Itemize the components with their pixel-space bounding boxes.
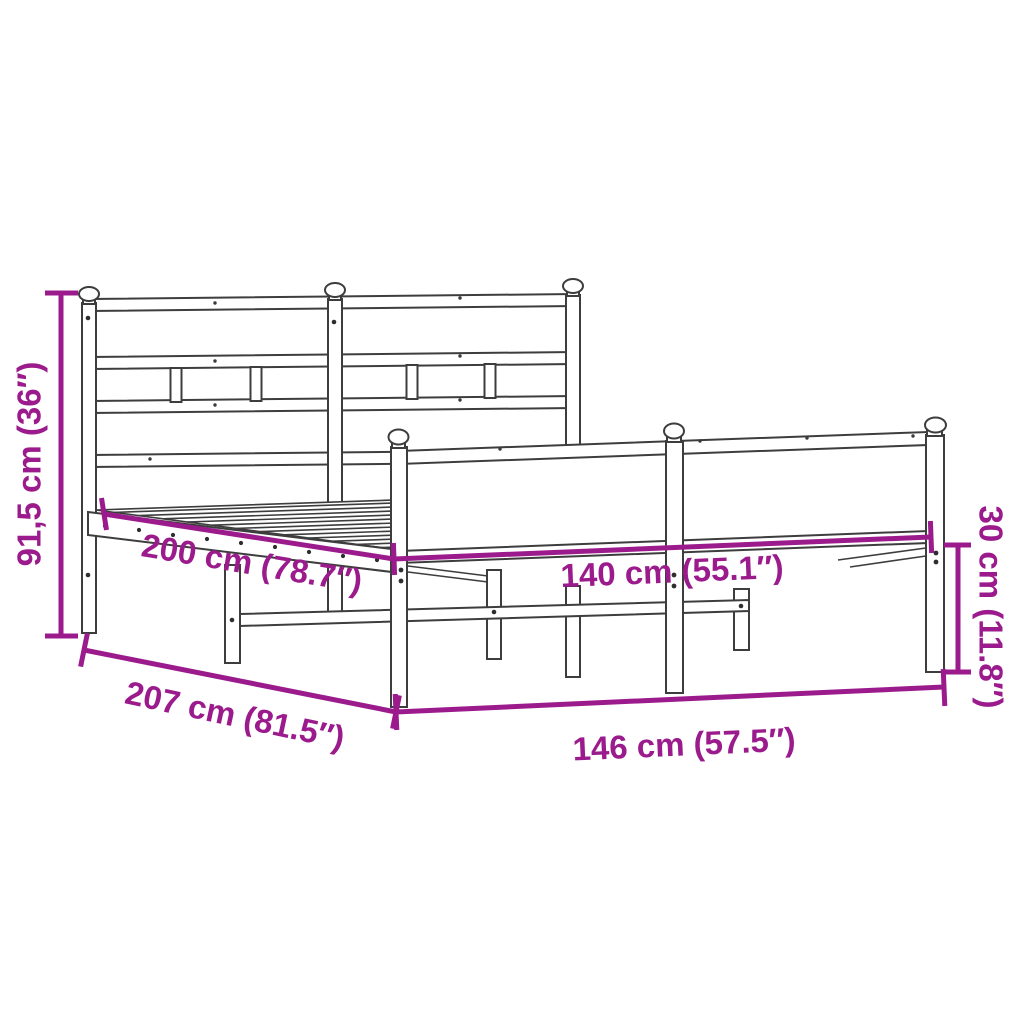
ball-finial [389,430,409,445]
dim-label-headboard-height: 91,5 cm (36″) [11,362,48,567]
dim-end-cap [393,543,394,575]
spindle [251,367,262,401]
dim-end-cap [395,694,397,730]
spindle [171,368,182,402]
dimension-headboard-height: 91,5 cm (36″) [11,293,79,636]
support-leg [566,586,580,677]
support-leg [734,589,749,650]
bed-frame-diagram-svg: 91,5 cm (36″) 200 cm (78.7″) 140 cm (55.… [0,0,1024,1024]
dim-label-inner-width: 140 cm (55.1″) [560,548,784,594]
dim-label-footboard-height: 30 cm (11.8″) [973,506,1010,709]
dim-end-cap [943,669,945,706]
support-leg [225,565,240,663]
spindle [407,365,418,399]
dim-end-cap [81,633,88,666]
headboard-post-left [82,303,96,633]
dim-label-outer-length: 207 cm (81.5″) [122,674,348,757]
dim-label-outer-width: 146 cm (57.5″) [572,720,797,767]
ball-finial [79,287,99,301]
spindle [485,364,496,398]
dimension-diagram: 91,5 cm (36″) 200 cm (78.7″) 140 cm (55.… [0,0,1024,1024]
ball-finial [325,283,345,297]
ball-finial [925,418,946,433]
dim-end-cap [930,521,931,553]
dimension-footboard-height: 30 cm (11.8″) [943,506,1010,709]
footboard-post-left [391,447,407,707]
ball-finial [664,424,684,439]
ball-finial [563,279,583,293]
